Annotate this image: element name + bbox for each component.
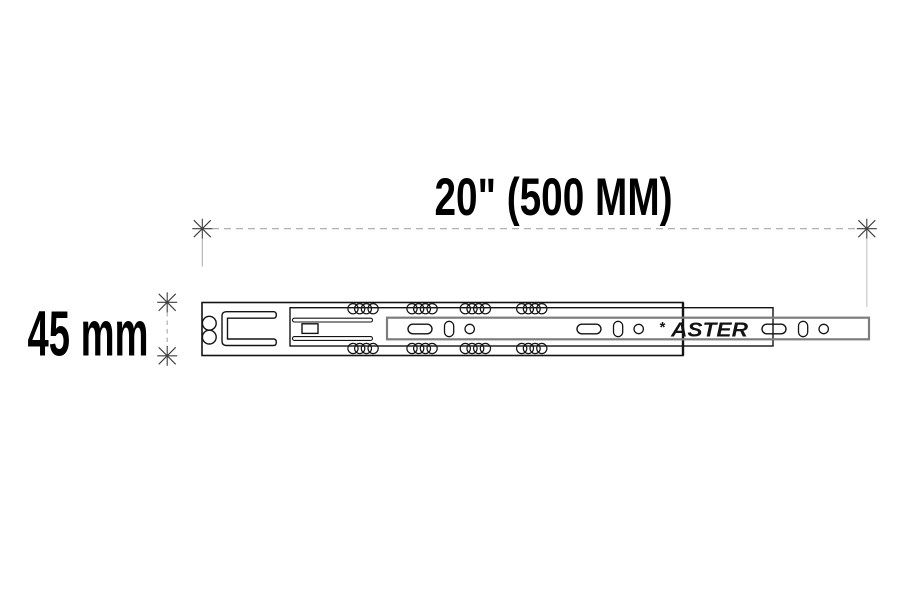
ball-bearing-group: [517, 304, 547, 314]
latch-window: [302, 324, 318, 334]
front-bracket: [222, 312, 276, 346]
dimension-cross-mark-bottom: [157, 346, 177, 366]
ball-bearing-group: [348, 304, 378, 314]
ball-bearing-group: [460, 343, 490, 353]
aster-logo-star: *: [659, 319, 666, 336]
dimension-cross-mark-right: [857, 219, 877, 239]
inner-rail: [387, 318, 869, 340]
mounting-hole-top: [202, 316, 216, 330]
inner-rail-slot-set-2: [577, 321, 643, 336]
height-dimension-label: 45 mm: [28, 298, 149, 370]
drawer-slide: * ASTER: [202, 303, 869, 356]
aster-logo-text: ASTER: [670, 319, 748, 342]
height-dimension: [157, 292, 177, 366]
aster-logo: * ASTER: [659, 319, 748, 342]
middle-rail-lip-bottom: [293, 337, 373, 341]
ball-bearing-group: [407, 304, 437, 314]
mounting-hole-bottom: [202, 330, 216, 344]
inner-rail-slot-set-3: [762, 321, 828, 336]
outer-rail-body: [202, 303, 683, 356]
ball-bearing-group: [407, 343, 437, 353]
dimension-cross-mark-top: [157, 292, 177, 312]
drawer-slide-technical-drawing: 20" (500 MM) 45 mm: [0, 0, 902, 599]
drawing-canvas: 20" (500 MM) 45 mm: [0, 0, 902, 599]
ball-bearing-group: [517, 343, 547, 353]
inner-rail-slot-set-1: [408, 321, 474, 336]
ball-bearing-group: [348, 343, 378, 353]
width-dimension-label: 20" (500 MM): [435, 168, 673, 227]
dimension-cross-mark-left: [192, 219, 212, 239]
outer-rail: [202, 303, 683, 356]
inner-rail-body: [387, 318, 869, 340]
ball-bearing-group: [460, 304, 490, 314]
width-dimension: [192, 219, 877, 307]
middle-rail-lip-top: [293, 318, 373, 322]
